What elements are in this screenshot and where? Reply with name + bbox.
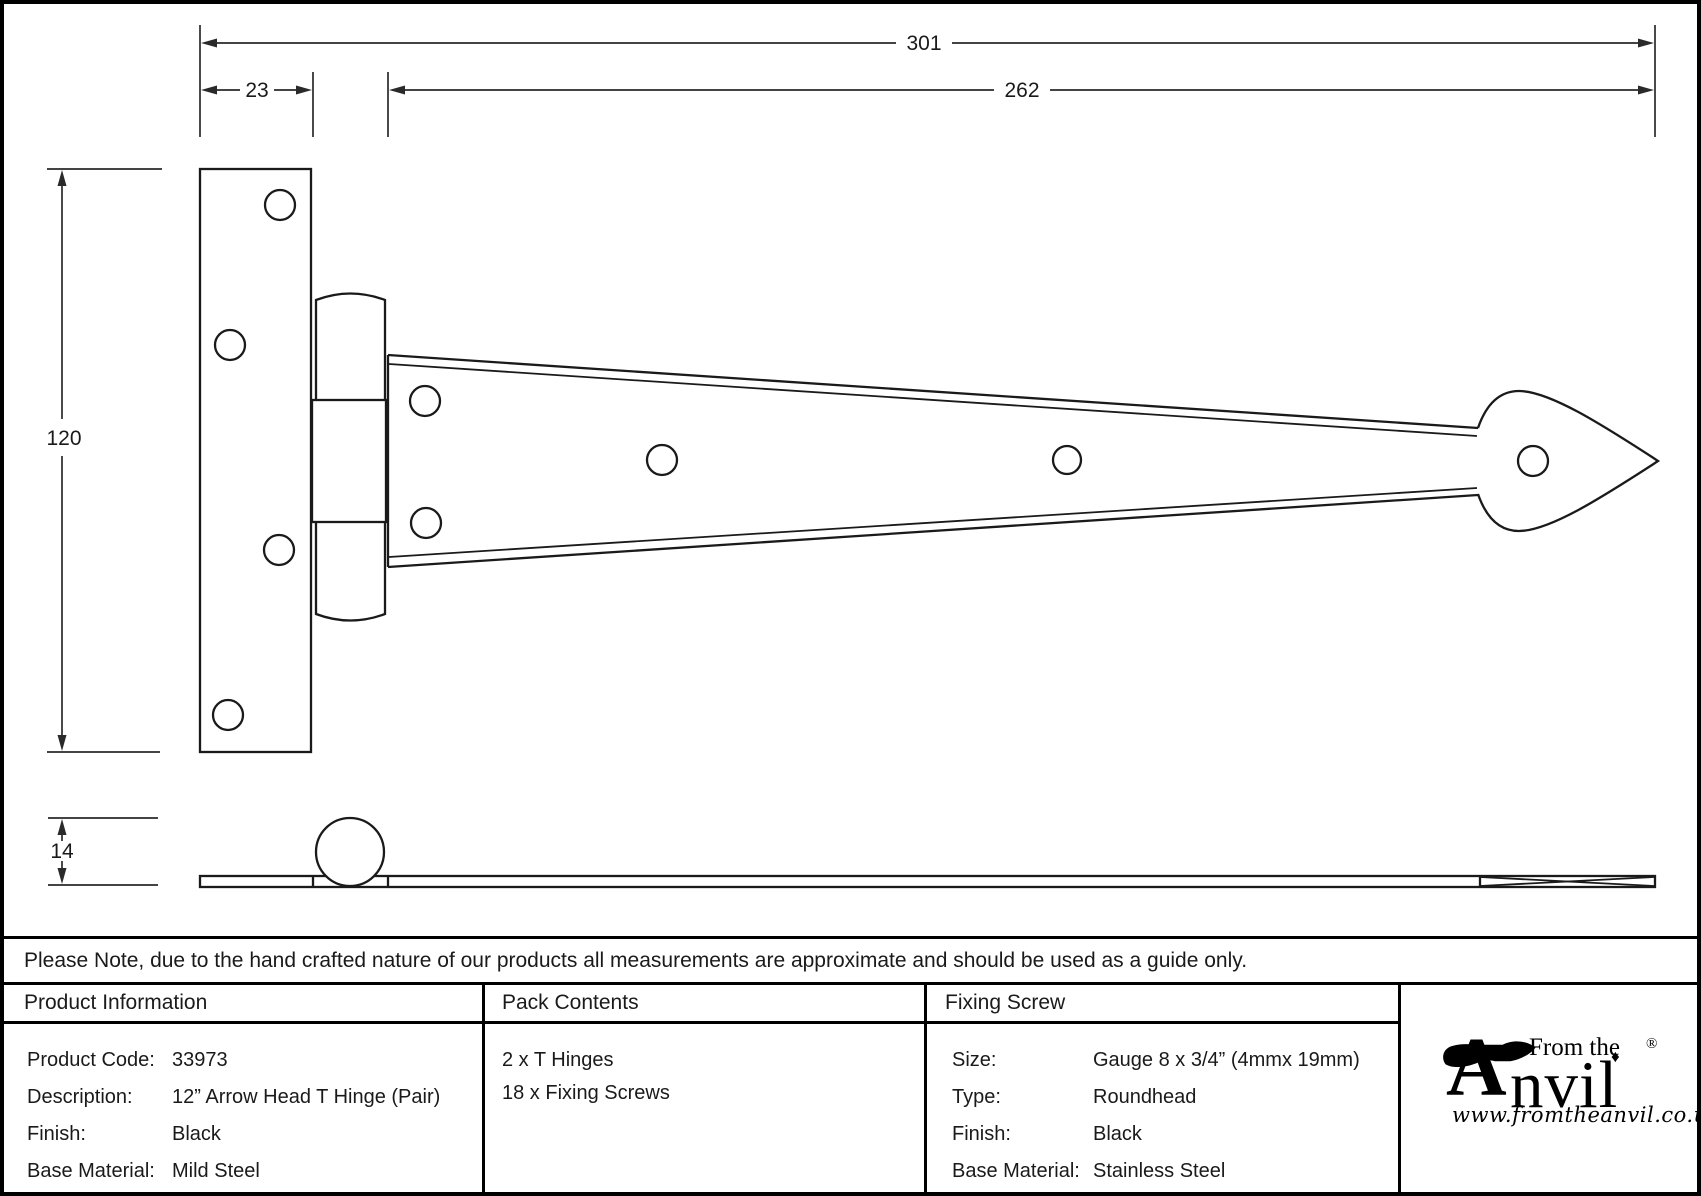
field-value: Gauge 8 x 3/4” (4mmx 19mm)	[1093, 1044, 1398, 1081]
field-value: 33973	[172, 1044, 482, 1081]
from-the-anvil-logo: A From the ♦ nvil ® www.fromtheanvil.co.…	[1444, 1033, 1674, 1137]
field-label: Type:	[952, 1081, 1093, 1118]
hinge-arrow-head	[1478, 391, 1658, 531]
info-table: Product Information Product Code: 33973 …	[4, 985, 1697, 1192]
field-value: Black	[172, 1118, 482, 1155]
hinge-strap	[388, 355, 1478, 567]
field-value: 12” Arrow Head T Hinge (Pair)	[172, 1081, 482, 1118]
product-information-body: Product Code: 33973 Description: 12” Arr…	[4, 1024, 482, 1192]
hinge-plate	[200, 169, 311, 752]
dim-plate-width: 23	[245, 79, 268, 102]
field-value: Mild Steel	[172, 1155, 482, 1192]
fixing-screw-header: Fixing Screw	[927, 985, 1398, 1024]
field-value: Black	[1093, 1118, 1398, 1155]
field-label: Description:	[27, 1081, 172, 1118]
field-label: Finish:	[952, 1118, 1093, 1155]
side-view-strap	[200, 876, 1655, 887]
pack-contents-column: Pack Contents 2 x T Hinges 18 x Fixing S…	[485, 985, 927, 1192]
hinge-knuckle-middle	[312, 400, 386, 522]
spec-sheet: 301 23 262 120 14 Please Note, due to th…	[0, 0, 1701, 1196]
field-label: Finish:	[27, 1118, 172, 1155]
logo-url: www.fromtheanvil.co.uk	[1452, 1105, 1701, 1126]
field-label: Base Material:	[27, 1155, 172, 1192]
product-information-column: Product Information Product Code: 33973 …	[4, 985, 485, 1192]
hinge-side-view	[200, 818, 1655, 887]
field-label: Product Code:	[27, 1044, 172, 1081]
product-information-header: Product Information	[4, 985, 482, 1024]
field-value: Stainless Steel	[1093, 1155, 1398, 1192]
fixing-screw-column: Fixing Screw Size: Gauge 8 x 3/4” (4mmx …	[927, 985, 1401, 1192]
disclaimer-text: Please Note, due to the hand crafted nat…	[24, 949, 1247, 973]
pack-contents-header: Pack Contents	[485, 985, 924, 1024]
field-label: Base Material:	[952, 1155, 1093, 1192]
registered-mark: ®	[1646, 1037, 1657, 1052]
disclaimer-note: Please Note, due to the hand crafted nat…	[4, 936, 1697, 985]
brand-column: A From the ♦ nvil ® www.fromtheanvil.co.…	[1401, 985, 1697, 1192]
hinge-plan-view	[200, 169, 1658, 752]
dim-strap-length: 262	[1004, 79, 1039, 102]
field-value: Roundhead	[1093, 1081, 1398, 1118]
dim-thickness: 14	[50, 840, 74, 863]
side-view-knuckle	[316, 818, 384, 886]
pack-item: 18 x Fixing Screws	[502, 1077, 924, 1110]
fixing-screw-body: Size: Gauge 8 x 3/4” (4mmx 19mm) Type: R…	[927, 1024, 1398, 1192]
pack-contents-body: 2 x T Hinges 18 x Fixing Screws	[485, 1024, 924, 1192]
pack-item: 2 x T Hinges	[502, 1044, 924, 1077]
dim-plate-height: 120	[46, 427, 81, 450]
dim-total-length: 301	[906, 32, 941, 55]
technical-drawing: 301 23 262 120 14	[4, 4, 1697, 936]
field-label: Size:	[952, 1044, 1093, 1081]
